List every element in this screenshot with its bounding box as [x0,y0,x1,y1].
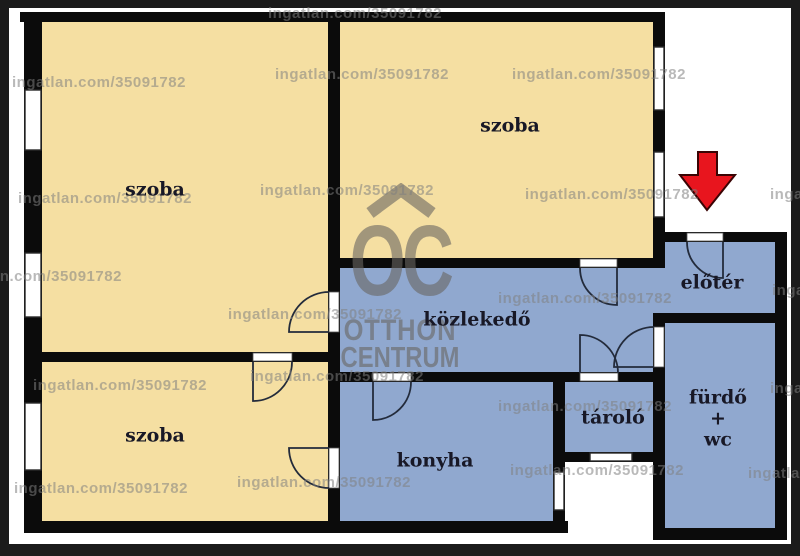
door-opening-6 [654,327,664,367]
wall-2 [24,521,568,533]
door-opening-1 [253,353,292,361]
window-0 [25,90,41,150]
room-floor-szoba-top-left [42,22,328,352]
floor-plan-drawing [0,0,800,556]
wall-3 [24,352,340,362]
window-6 [590,453,632,461]
room-floor-furdo-wc [665,323,775,528]
window-2 [25,403,41,470]
window-5 [554,472,564,510]
door-opening-7 [687,233,723,241]
room-floor-tarolo [565,382,653,452]
window-4 [654,152,664,217]
door-opening-5 [373,373,411,381]
wall-14 [653,528,787,540]
door-opening-4 [580,373,618,381]
wall-11 [653,313,787,323]
window-1 [25,253,41,317]
window-3 [654,47,664,110]
room-floor-konyha [340,382,553,521]
wall-13 [775,232,787,540]
room-floor-szoba-top-right [340,22,653,258]
room-floor-kozlekedo [340,268,653,372]
wall-0 [20,12,665,22]
door-opening-0 [329,292,339,332]
door-opening-2 [329,448,339,488]
room-floor-szoba-bottom-left [42,362,328,521]
door-opening-3 [580,259,617,267]
floor-plan-image: OC OTTHON CENTRUM ingatlan.com/35091782i… [0,0,800,556]
room-floor-kozlekedo-passage [653,268,665,313]
